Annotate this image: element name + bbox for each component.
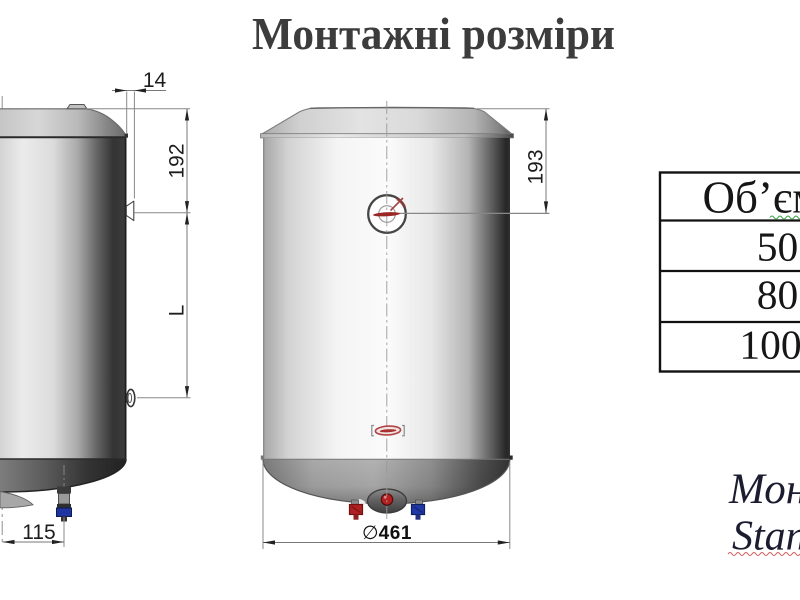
svg-text:192: 192 [166,143,189,178]
svg-text:115: 115 [22,521,55,544]
svg-text:L: L [166,305,189,317]
svg-text:50: 50 [757,224,799,270]
svg-text:Standart: Standart [732,514,800,560]
svg-text:Монтаж: Монтаж [728,466,800,513]
svg-text:100: 100 [739,322,800,368]
svg-text:Монтажні розміри: Монтажні розміри [252,8,615,59]
svg-text:Об’єм: Об’єм [703,173,800,223]
svg-text:80: 80 [757,272,799,318]
svg-text:14: 14 [143,69,167,92]
svg-text:∅461: ∅461 [362,523,412,544]
svg-text:193: 193 [525,149,548,184]
